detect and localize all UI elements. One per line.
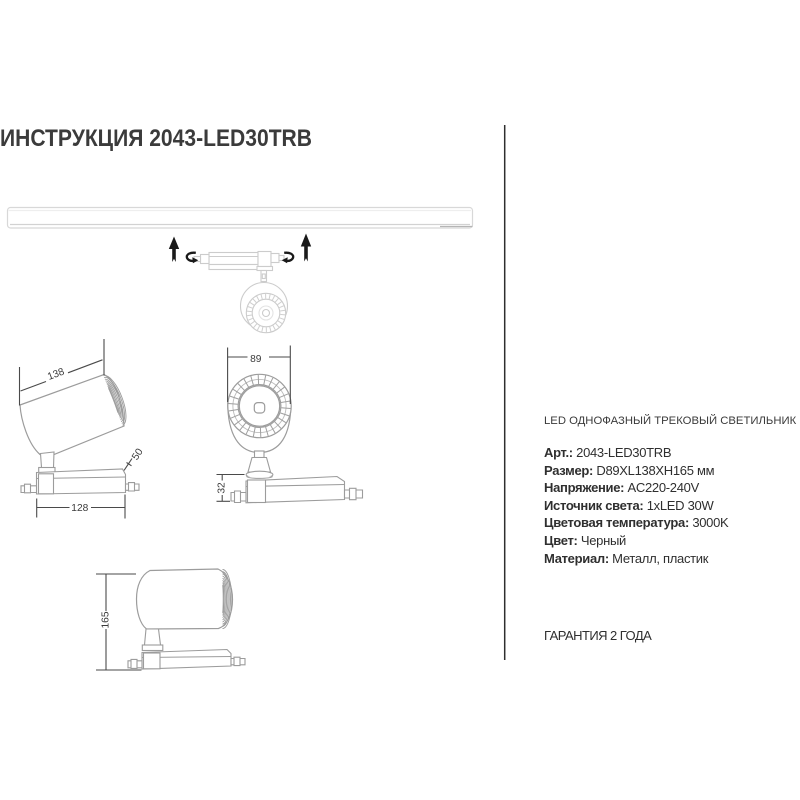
- svg-text:32: 32: [217, 482, 228, 494]
- svg-text:138: 138: [46, 366, 66, 382]
- svg-text:50: 50: [130, 447, 146, 463]
- svg-text:89: 89: [250, 354, 262, 365]
- svg-text:128: 128: [71, 503, 88, 514]
- svg-text:165: 165: [101, 611, 112, 628]
